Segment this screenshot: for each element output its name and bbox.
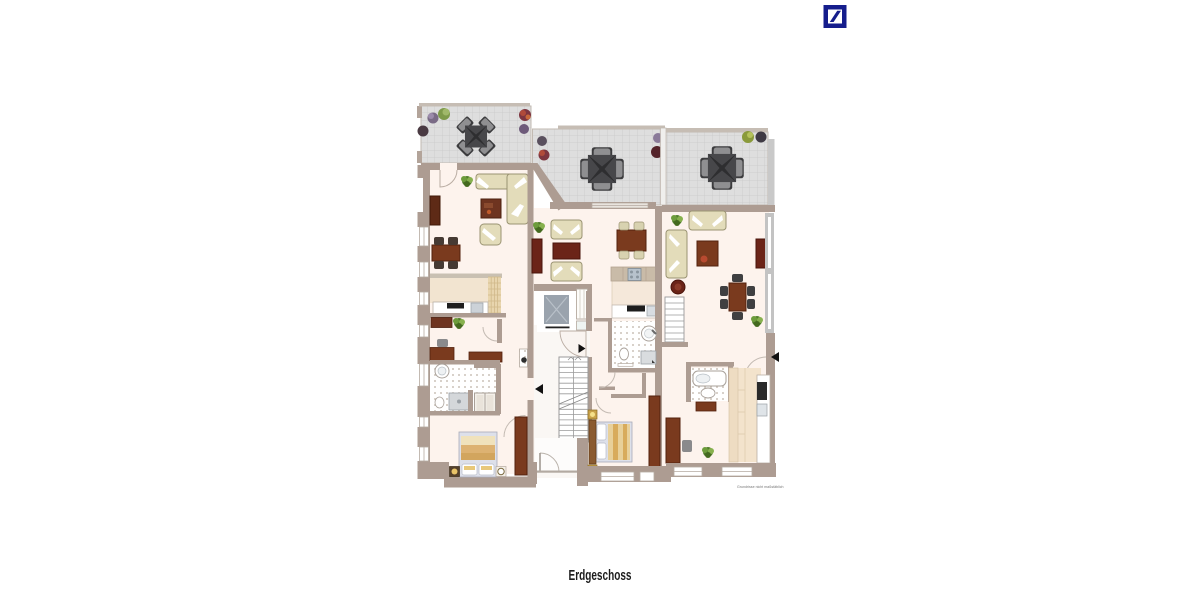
svg-text:Erdgeschoss: Erdgeschoss [569,567,632,584]
svg-text:Grundrisse nicht maßstäblich: Grundrisse nicht maßstäblich [737,485,784,489]
